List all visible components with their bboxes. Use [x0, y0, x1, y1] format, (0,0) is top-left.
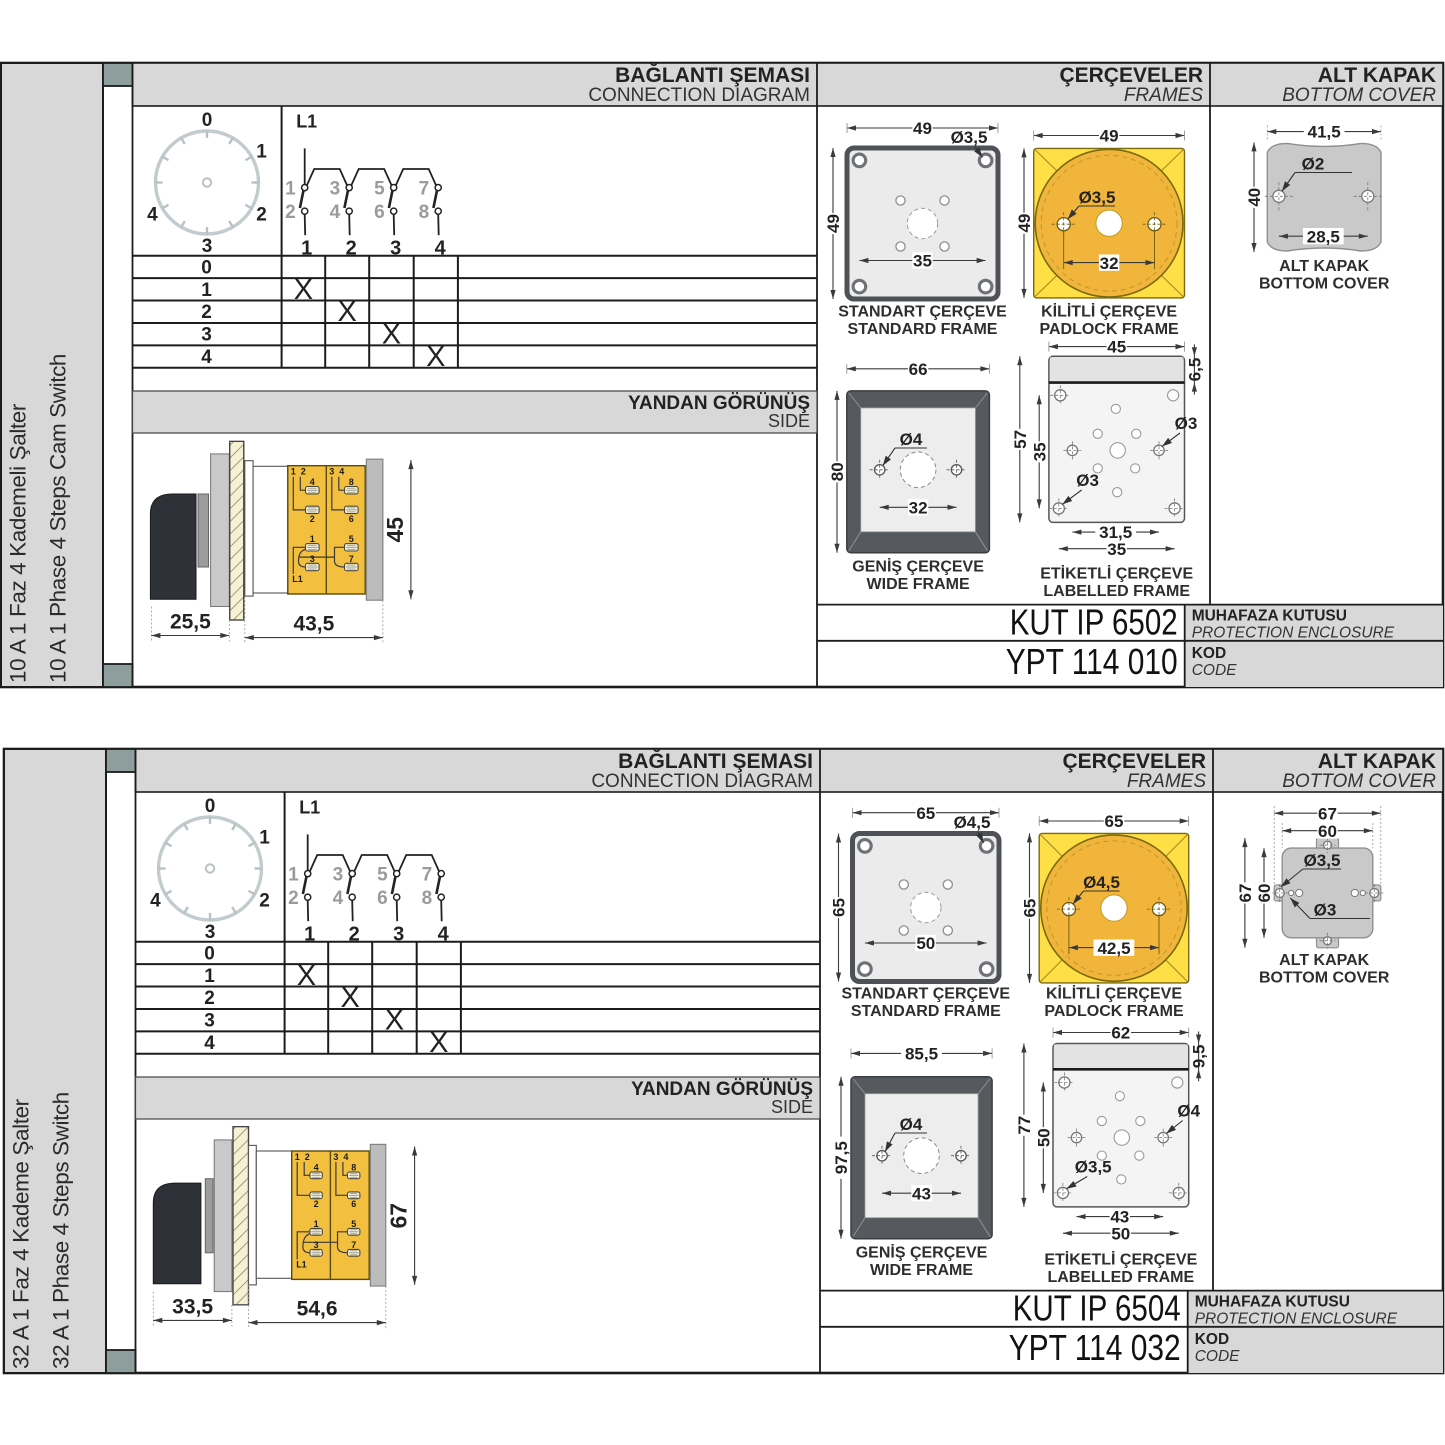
svg-text:X: X — [426, 341, 445, 373]
svg-text:BOTTOM COVER: BOTTOM COVER — [1259, 970, 1390, 987]
svg-text:32: 32 — [909, 499, 928, 518]
svg-text:4: 4 — [314, 1162, 319, 1172]
svg-text:1: 1 — [259, 828, 270, 849]
svg-text:LABELLED FRAME: LABELLED FRAME — [1047, 1269, 1194, 1286]
svg-text:Ø4: Ø4 — [900, 430, 923, 449]
svg-text:60: 60 — [1318, 822, 1337, 841]
svg-text:4: 4 — [201, 347, 212, 368]
svg-text:6,5: 6,5 — [1186, 358, 1205, 382]
svg-text:ÇERÇEVELER: ÇERÇEVELER — [1059, 64, 1203, 87]
svg-text:2: 2 — [314, 1199, 319, 1209]
svg-text:3: 3 — [329, 467, 334, 477]
svg-text:3: 3 — [202, 236, 213, 257]
svg-text:2: 2 — [301, 467, 306, 477]
svg-text:28,5: 28,5 — [1307, 227, 1340, 246]
svg-text:3: 3 — [205, 922, 216, 943]
svg-text:Ø4: Ø4 — [1177, 1102, 1200, 1121]
svg-text:65: 65 — [916, 804, 935, 823]
svg-text:41,5: 41,5 — [1308, 123, 1341, 142]
svg-text:0: 0 — [202, 110, 213, 131]
svg-text:L1: L1 — [296, 112, 317, 132]
svg-text:1: 1 — [295, 1152, 300, 1162]
svg-text:ETİKETLİ ÇERÇEVE: ETİKETLİ ÇERÇEVE — [1044, 1251, 1197, 1269]
svg-text:KİLİTLİ ÇERÇEVE: KİLİTLİ ÇERÇEVE — [1041, 303, 1177, 321]
svg-text:35: 35 — [1030, 442, 1049, 461]
svg-text:BAĞLANTI ŞEMASI: BAĞLANTI ŞEMASI — [615, 63, 810, 87]
svg-text:ÇERÇEVELER: ÇERÇEVELER — [1062, 750, 1206, 773]
svg-text:4: 4 — [330, 202, 341, 223]
svg-text:STANDARD FRAME: STANDARD FRAME — [848, 321, 998, 338]
svg-text:85,5: 85,5 — [905, 1045, 938, 1064]
svg-text:62: 62 — [1111, 1024, 1130, 1043]
svg-text:KUT IP 6502: KUT IP 6502 — [1010, 602, 1178, 643]
svg-text:3: 3 — [201, 325, 212, 346]
svg-text:BOTTOM COVER: BOTTOM COVER — [1282, 771, 1436, 792]
svg-text:3: 3 — [333, 864, 344, 885]
svg-text:5: 5 — [349, 534, 354, 544]
svg-text:60: 60 — [1255, 884, 1274, 903]
svg-text:49: 49 — [913, 119, 932, 138]
svg-text:MUHAFAZA KUTUSU: MUHAFAZA KUTUSU — [1192, 608, 1347, 625]
svg-text:2: 2 — [204, 988, 215, 1009]
svg-text:ETİKETLİ ÇERÇEVE: ETİKETLİ ÇERÇEVE — [1040, 565, 1193, 583]
svg-text:X: X — [429, 1027, 448, 1059]
svg-text:SIDE: SIDE — [771, 1097, 813, 1117]
svg-text:STANDART ÇERÇEVE: STANDART ÇERÇEVE — [841, 986, 1010, 1003]
svg-text:ALT KAPAK: ALT KAPAK — [1318, 750, 1436, 773]
svg-text:67: 67 — [1236, 884, 1255, 903]
svg-text:L1: L1 — [299, 798, 320, 818]
svg-text:Ø3: Ø3 — [1076, 471, 1099, 490]
svg-text:PROTECTION ENCLOSURE: PROTECTION ENCLOSURE — [1192, 625, 1395, 642]
svg-text:ALT KAPAK: ALT KAPAK — [1279, 258, 1370, 275]
svg-text:45: 45 — [382, 517, 408, 543]
svg-text:8: 8 — [351, 1162, 356, 1172]
svg-text:Ø4,5: Ø4,5 — [954, 813, 991, 832]
svg-text:Ø4,5: Ø4,5 — [1083, 873, 1120, 892]
svg-text:33,5: 33,5 — [172, 1295, 213, 1318]
svg-text:5: 5 — [351, 1219, 356, 1229]
svg-text:3: 3 — [314, 1240, 319, 1250]
svg-text:STANDARD FRAME: STANDARD FRAME — [851, 1003, 1001, 1020]
svg-text:43: 43 — [912, 1184, 931, 1203]
svg-text:2: 2 — [256, 205, 267, 226]
svg-text:0: 0 — [201, 257, 212, 278]
svg-text:3: 3 — [310, 554, 315, 564]
svg-text:49: 49 — [824, 214, 843, 233]
svg-text:2: 2 — [259, 891, 270, 912]
svg-text:6: 6 — [349, 514, 354, 524]
svg-text:43,5: 43,5 — [293, 613, 334, 636]
svg-text:4: 4 — [204, 1033, 215, 1054]
svg-text:SIDE: SIDE — [768, 411, 810, 431]
svg-text:67: 67 — [1318, 804, 1337, 823]
svg-text:1: 1 — [314, 1219, 319, 1229]
svg-text:MUHAFAZA KUTUSU: MUHAFAZA KUTUSU — [1195, 1294, 1350, 1311]
svg-text:2: 2 — [201, 302, 212, 323]
svg-text:8: 8 — [349, 477, 354, 487]
svg-text:32 A 1 Faz 4 Kademe Şalter: 32 A 1 Faz 4 Kademe Şalter — [9, 1098, 34, 1369]
svg-text:X: X — [294, 274, 313, 306]
svg-text:50: 50 — [916, 934, 935, 953]
svg-text:25,5: 25,5 — [170, 611, 211, 634]
svg-text:1: 1 — [288, 864, 299, 885]
svg-text:CODE: CODE — [1195, 1348, 1240, 1365]
svg-text:BOTTOM COVER: BOTTOM COVER — [1282, 85, 1436, 106]
svg-text:3: 3 — [204, 1011, 215, 1032]
svg-text:0: 0 — [204, 943, 215, 964]
svg-text:KUT IP 6504: KUT IP 6504 — [1013, 1288, 1181, 1329]
svg-text:YPT 114 010: YPT 114 010 — [1006, 641, 1178, 682]
svg-text:9,5: 9,5 — [1190, 1045, 1209, 1069]
svg-text:0: 0 — [205, 796, 216, 817]
svg-text:FRAMES: FRAMES — [1127, 771, 1207, 792]
svg-text:2: 2 — [310, 514, 315, 524]
svg-text:ALT KAPAK: ALT KAPAK — [1318, 64, 1436, 87]
svg-text:80: 80 — [828, 462, 847, 481]
svg-text:4: 4 — [343, 1152, 348, 1162]
svg-text:Ø4: Ø4 — [900, 1115, 923, 1134]
svg-text:32: 32 — [1100, 254, 1119, 273]
svg-text:X: X — [297, 960, 316, 992]
svg-text:7: 7 — [351, 1240, 356, 1250]
svg-text:X: X — [385, 1005, 404, 1037]
svg-text:L1: L1 — [292, 574, 303, 584]
svg-text:3: 3 — [333, 1152, 338, 1162]
svg-text:GENİŞ ÇERÇEVE: GENİŞ ÇERÇEVE — [852, 558, 984, 576]
svg-text:1: 1 — [285, 178, 296, 199]
svg-text:10 A 1 Phase 4 Steps Cam Switc: 10 A 1 Phase 4 Steps Cam Switch — [46, 354, 71, 683]
svg-text:7: 7 — [422, 864, 433, 885]
svg-text:50: 50 — [1111, 1224, 1130, 1243]
svg-text:1: 1 — [291, 467, 296, 477]
svg-text:PADLOCK FRAME: PADLOCK FRAME — [1039, 321, 1179, 338]
svg-text:3: 3 — [330, 178, 341, 199]
svg-text:7: 7 — [349, 554, 354, 564]
svg-text:10 A 1 Faz 4 Kademeli Şalter: 10 A 1 Faz 4 Kademeli Şalter — [6, 403, 31, 683]
svg-text:BOTTOM COVER: BOTTOM COVER — [1259, 276, 1390, 293]
svg-text:6: 6 — [351, 1199, 356, 1209]
svg-text:57: 57 — [1011, 430, 1030, 449]
svg-text:1: 1 — [256, 142, 267, 163]
svg-text:1: 1 — [310, 534, 315, 544]
svg-text:FRAMES: FRAMES — [1124, 85, 1204, 106]
svg-text:77: 77 — [1015, 1116, 1034, 1135]
svg-text:65: 65 — [830, 898, 849, 917]
svg-text:66: 66 — [909, 360, 928, 379]
svg-text:LABELLED FRAME: LABELLED FRAME — [1043, 583, 1190, 600]
svg-text:X: X — [338, 296, 357, 328]
svg-text:4: 4 — [147, 205, 158, 226]
svg-text:35: 35 — [1107, 540, 1126, 559]
svg-text:Ø3,5: Ø3,5 — [951, 128, 988, 147]
svg-text:STANDART ÇERÇEVE: STANDART ÇERÇEVE — [838, 304, 1007, 321]
svg-text:CONNECTION DIAGRAM: CONNECTION DIAGRAM — [591, 771, 813, 792]
svg-text:KİLİTLİ ÇERÇEVE: KİLİTLİ ÇERÇEVE — [1046, 985, 1182, 1003]
svg-text:35: 35 — [913, 252, 932, 271]
svg-text:KOD: KOD — [1192, 645, 1226, 662]
svg-text:PROTECTION ENCLOSURE: PROTECTION ENCLOSURE — [1195, 1311, 1398, 1328]
svg-text:49: 49 — [1100, 127, 1119, 146]
svg-text:50: 50 — [1034, 1128, 1053, 1147]
svg-text:1: 1 — [204, 966, 215, 987]
svg-text:32 A 1 Phase 4 Steps Switch: 32 A 1 Phase 4 Steps Switch — [49, 1092, 74, 1369]
svg-text:GENİŞ ÇERÇEVE: GENİŞ ÇERÇEVE — [856, 1244, 988, 1262]
svg-text:5: 5 — [374, 178, 385, 199]
svg-text:54,6: 54,6 — [297, 1298, 338, 1321]
svg-text:8: 8 — [419, 202, 430, 223]
svg-text:Ø3: Ø3 — [1175, 414, 1198, 433]
svg-text:Ø3,5: Ø3,5 — [1075, 1158, 1112, 1177]
svg-text:Ø3,5: Ø3,5 — [1079, 188, 1116, 207]
svg-text:L1: L1 — [296, 1259, 307, 1269]
svg-text:YPT 114 032: YPT 114 032 — [1009, 1327, 1181, 1368]
svg-text:40: 40 — [1245, 188, 1264, 207]
svg-text:49: 49 — [1015, 214, 1034, 233]
svg-text:CONNECTION DIAGRAM: CONNECTION DIAGRAM — [588, 85, 810, 106]
svg-text:7: 7 — [419, 178, 430, 199]
svg-text:42,5: 42,5 — [1097, 939, 1130, 958]
svg-text:6: 6 — [374, 202, 385, 223]
svg-text:5: 5 — [377, 864, 388, 885]
svg-text:2: 2 — [285, 202, 296, 223]
svg-text:4: 4 — [339, 467, 344, 477]
svg-text:2: 2 — [305, 1152, 310, 1162]
svg-text:Ø3: Ø3 — [1314, 901, 1337, 920]
svg-text:KOD: KOD — [1195, 1331, 1229, 1348]
svg-text:4: 4 — [310, 477, 315, 487]
svg-text:CODE: CODE — [1192, 662, 1237, 679]
svg-text:65: 65 — [1105, 812, 1124, 831]
svg-text:ALT KAPAK: ALT KAPAK — [1279, 952, 1370, 969]
svg-text:4: 4 — [150, 891, 161, 912]
svg-text:65: 65 — [1021, 899, 1040, 918]
svg-text:WIDE FRAME: WIDE FRAME — [867, 576, 970, 593]
svg-text:97,5: 97,5 — [832, 1141, 851, 1174]
svg-text:67: 67 — [386, 1203, 412, 1229]
svg-text:X: X — [382, 319, 401, 351]
svg-text:4: 4 — [333, 888, 344, 909]
svg-text:Ø3,5: Ø3,5 — [1304, 851, 1341, 870]
svg-text:45: 45 — [1107, 338, 1126, 357]
svg-text:8: 8 — [422, 888, 433, 909]
svg-text:2: 2 — [288, 888, 299, 909]
svg-text:BAĞLANTI ŞEMASI: BAĞLANTI ŞEMASI — [618, 749, 813, 773]
svg-text:WIDE FRAME: WIDE FRAME — [870, 1262, 973, 1279]
svg-text:PADLOCK FRAME: PADLOCK FRAME — [1044, 1003, 1184, 1020]
svg-text:X: X — [341, 982, 360, 1014]
svg-text:6: 6 — [377, 888, 388, 909]
svg-text:1: 1 — [201, 280, 212, 301]
svg-text:Ø2: Ø2 — [1302, 155, 1325, 174]
